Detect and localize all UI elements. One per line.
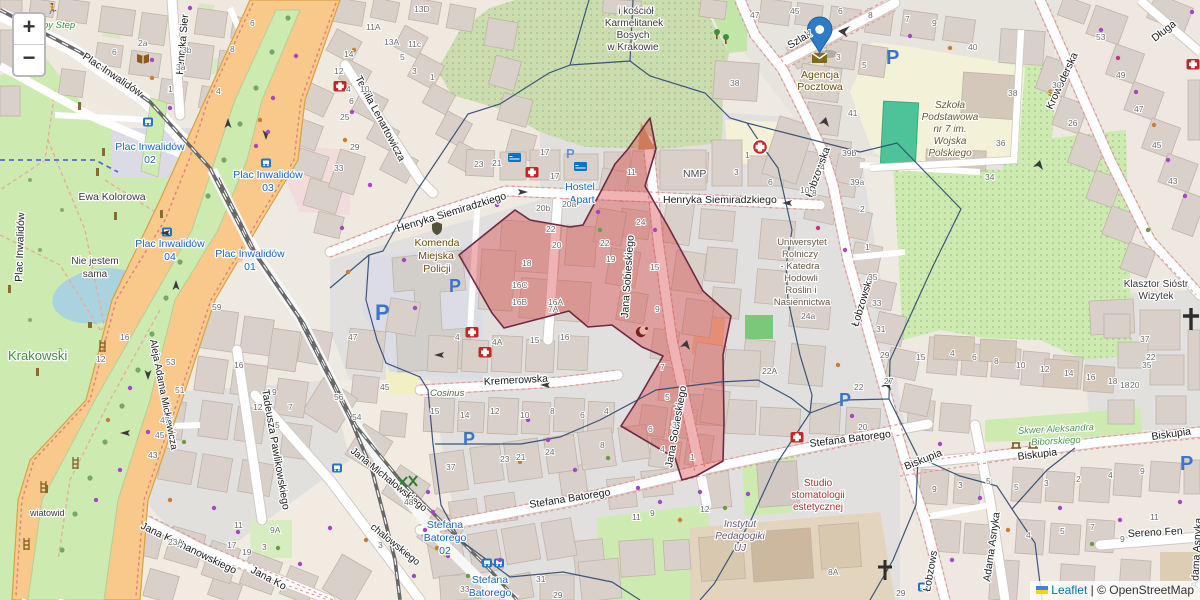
svg-text:16: 16 xyxy=(234,360,244,370)
svg-text:6: 6 xyxy=(768,177,773,187)
svg-text:9: 9 xyxy=(1140,466,1145,476)
svg-text:9: 9 xyxy=(650,508,655,518)
svg-text:16B: 16B xyxy=(512,297,527,307)
svg-text:9: 9 xyxy=(655,304,660,314)
svg-text:39b: 39b xyxy=(842,148,856,158)
svg-text:40: 40 xyxy=(968,42,978,52)
svg-text:43: 43 xyxy=(1168,176,1178,186)
svg-text:20: 20 xyxy=(858,422,868,432)
svg-text:Plac Inwalidów: Plac Inwalidów xyxy=(233,169,303,181)
svg-text:26: 26 xyxy=(1068,118,1078,128)
svg-text:4: 4 xyxy=(660,444,665,454)
svg-text:03: 03 xyxy=(262,182,274,194)
svg-text:20: 20 xyxy=(552,240,562,250)
svg-text:38: 38 xyxy=(730,78,740,88)
svg-text:5: 5 xyxy=(862,60,867,70)
svg-text:37: 37 xyxy=(446,462,456,472)
svg-text:3: 3 xyxy=(378,540,383,550)
svg-text:3a: 3a xyxy=(176,62,186,72)
svg-text:31: 31 xyxy=(876,324,886,334)
svg-text:4A: 4A xyxy=(492,337,503,347)
svg-text:11: 11 xyxy=(632,512,641,522)
svg-text:11: 11 xyxy=(1150,512,1159,522)
svg-text:49: 49 xyxy=(1116,70,1126,80)
svg-text:47: 47 xyxy=(348,332,358,342)
svg-text:wiatowid: wiatowid xyxy=(29,508,65,518)
svg-text:Batorego: Batorego xyxy=(424,532,467,544)
svg-text:29: 29 xyxy=(350,142,360,152)
svg-text:10: 10 xyxy=(1016,360,1026,370)
svg-text:5: 5 xyxy=(400,52,405,62)
svg-text:Komenda: Komenda xyxy=(415,237,460,249)
svg-text:9: 9 xyxy=(1120,534,1125,544)
svg-text:Plac Inwalidów: Plac Inwalidów xyxy=(115,141,185,153)
svg-text:3: 3 xyxy=(1044,478,1049,488)
svg-text:25: 25 xyxy=(340,112,350,122)
svg-text:24a: 24a xyxy=(801,311,815,321)
svg-text:Karmelitanek: Karmelitanek xyxy=(605,18,664,29)
svg-text:5: 5 xyxy=(1014,482,1019,492)
svg-text:🏃: 🏃 xyxy=(46,2,58,15)
svg-text:02: 02 xyxy=(144,154,156,166)
svg-text:4: 4 xyxy=(950,348,955,358)
svg-text:P: P xyxy=(463,429,475,449)
svg-text:7: 7 xyxy=(1090,522,1095,532)
svg-text:19: 19 xyxy=(606,254,616,264)
svg-text:Polskiego: Polskiego xyxy=(928,148,972,159)
svg-text:13A: 13A xyxy=(384,37,399,47)
svg-text:5: 5 xyxy=(1060,526,1065,536)
svg-text:3b: 3b xyxy=(182,45,192,55)
svg-text:10: 10 xyxy=(360,84,370,94)
svg-text:Henryka Siemiradzkiego: Henryka Siemiradzkiego xyxy=(663,194,777,206)
svg-text:4: 4 xyxy=(346,84,351,94)
svg-text:6: 6 xyxy=(648,424,653,434)
svg-text:51: 51 xyxy=(175,385,185,395)
svg-text:15: 15 xyxy=(916,352,926,362)
svg-text:4: 4 xyxy=(216,86,221,96)
svg-text:3: 3 xyxy=(412,66,417,76)
svg-text:2a: 2a xyxy=(138,38,148,48)
svg-text:38: 38 xyxy=(1008,88,1018,98)
svg-text:16A: 16A xyxy=(548,297,563,307)
svg-text:7: 7 xyxy=(288,402,293,412)
svg-text:Stefana: Stefana xyxy=(427,519,463,531)
svg-text:3: 3 xyxy=(958,480,963,490)
svg-text:4: 4 xyxy=(820,162,825,172)
svg-text:11c: 11c xyxy=(408,39,422,49)
svg-text:16C: 16C xyxy=(512,280,528,290)
svg-text:47: 47 xyxy=(160,415,170,425)
svg-text:15: 15 xyxy=(650,262,660,272)
svg-text:Uniwersytet: Uniwersytet xyxy=(777,237,827,248)
svg-text:w Krakowie: w Krakowie xyxy=(606,42,659,53)
svg-text:5: 5 xyxy=(275,420,280,430)
svg-text:13D: 13D xyxy=(414,4,430,14)
svg-text:Agencja: Agencja xyxy=(801,69,839,81)
svg-text:33: 33 xyxy=(460,584,470,594)
svg-text:12: 12 xyxy=(1040,364,1050,374)
svg-text:18: 18 xyxy=(522,258,532,268)
svg-text:23: 23 xyxy=(474,159,484,169)
svg-text:43: 43 xyxy=(148,450,158,460)
svg-text:30: 30 xyxy=(1052,80,1062,90)
svg-text:1: 1 xyxy=(690,452,695,462)
svg-text:5: 5 xyxy=(986,476,991,486)
svg-text:22: 22 xyxy=(600,238,610,248)
svg-text:14: 14 xyxy=(460,410,470,420)
svg-text:22A: 22A xyxy=(762,366,777,376)
svg-text:12: 12 xyxy=(334,66,344,76)
svg-text:29: 29 xyxy=(553,590,563,600)
svg-text:36: 36 xyxy=(996,138,1006,148)
svg-text:45: 45 xyxy=(790,6,800,16)
svg-text:by Step: by Step xyxy=(43,20,75,31)
svg-text:24: 24 xyxy=(636,217,646,227)
svg-text:8: 8 xyxy=(868,10,873,20)
svg-text:17: 17 xyxy=(227,540,237,550)
svg-text:8A: 8A xyxy=(828,567,839,577)
svg-text:Ewa Kolorowa: Ewa Kolorowa xyxy=(78,191,145,203)
svg-text:10: 10 xyxy=(800,185,810,195)
svg-text:8: 8 xyxy=(812,188,817,198)
svg-text:02: 02 xyxy=(439,545,451,557)
svg-text:39a: 39a xyxy=(850,177,864,187)
svg-text:4: 4 xyxy=(1026,530,1031,540)
svg-text:20b: 20b xyxy=(536,203,550,213)
svg-text:33: 33 xyxy=(334,163,344,173)
svg-text:53: 53 xyxy=(1096,32,1106,42)
svg-text:1: 1 xyxy=(745,150,750,160)
svg-text:1: 1 xyxy=(430,72,435,82)
svg-text:8: 8 xyxy=(600,440,605,450)
svg-text:4: 4 xyxy=(604,406,609,416)
svg-text:15: 15 xyxy=(530,335,540,345)
svg-text:18: 18 xyxy=(1108,376,1118,386)
svg-text:NMP: NMP xyxy=(683,168,706,180)
svg-text:5: 5 xyxy=(665,392,670,402)
svg-text:Nasiennictwa: Nasiennictwa xyxy=(774,297,831,308)
svg-text:27: 27 xyxy=(884,376,894,386)
svg-text:7: 7 xyxy=(660,362,665,372)
svg-text:Stefana: Stefana xyxy=(472,574,508,586)
svg-text:P: P xyxy=(839,390,851,410)
svg-text:45: 45 xyxy=(155,430,165,440)
svg-text:Szkoła: Szkoła xyxy=(935,100,965,111)
svg-text:1: 1 xyxy=(865,242,870,252)
svg-text:22: 22 xyxy=(546,224,556,234)
svg-text:P: P xyxy=(449,276,461,296)
svg-text:2: 2 xyxy=(860,204,865,214)
svg-text:4: 4 xyxy=(455,332,460,342)
svg-text:12: 12 xyxy=(700,504,710,514)
svg-text:estetycznej: estetycznej xyxy=(793,502,843,513)
svg-text:37: 37 xyxy=(1140,334,1150,344)
svg-text:P: P xyxy=(1180,453,1193,475)
svg-text:3: 3 xyxy=(836,52,841,62)
svg-text:31: 31 xyxy=(536,574,546,584)
svg-text:9A: 9A xyxy=(270,525,281,535)
svg-text:16: 16 xyxy=(1086,372,1096,382)
svg-text:04: 04 xyxy=(164,251,176,263)
svg-text:6: 6 xyxy=(580,410,585,420)
svg-text:12: 12 xyxy=(96,354,106,364)
svg-text:19: 19 xyxy=(242,547,252,557)
svg-text:12: 12 xyxy=(490,406,500,416)
svg-text:47: 47 xyxy=(1134,104,1144,114)
svg-text:Klasztor Sióstr: Klasztor Sióstr xyxy=(1124,279,1189,290)
svg-text:8: 8 xyxy=(994,356,999,366)
svg-text:9: 9 xyxy=(272,387,277,397)
svg-text:Studio: Studio xyxy=(804,478,833,489)
svg-text:20: 20 xyxy=(1130,380,1140,390)
svg-text:Batorego: Batorego xyxy=(469,587,512,599)
svg-text:29: 29 xyxy=(896,588,906,598)
svg-text:2: 2 xyxy=(1076,474,1081,484)
svg-text:34: 34 xyxy=(985,172,995,182)
svg-text:20a: 20a xyxy=(562,199,576,209)
svg-text:Bosych: Bosych xyxy=(617,30,650,41)
svg-text:Plac Inwalidów: Plac Inwalidów xyxy=(13,212,27,282)
svg-text:35: 35 xyxy=(868,272,878,282)
svg-text:11A: 11A xyxy=(366,22,381,32)
svg-text:Cosinus: Cosinus xyxy=(430,388,465,399)
svg-text:22: 22 xyxy=(1146,352,1156,362)
svg-text:6: 6 xyxy=(250,18,255,28)
svg-text:23: 23 xyxy=(500,454,510,464)
svg-text:17: 17 xyxy=(540,147,550,157)
svg-text:P: P xyxy=(886,47,899,69)
svg-text:Pocztowa: Pocztowa xyxy=(797,81,843,93)
svg-text:01: 01 xyxy=(244,261,256,273)
svg-text:9: 9 xyxy=(932,484,937,494)
svg-text:7: 7 xyxy=(905,14,910,24)
svg-text:3: 3 xyxy=(262,542,267,552)
svg-text:nr 7 im.: nr 7 im. xyxy=(933,124,966,135)
svg-text:4: 4 xyxy=(806,28,811,38)
svg-text:Podstawowa: Podstawowa xyxy=(922,112,979,123)
svg-text:21: 21 xyxy=(516,452,526,462)
svg-text:45: 45 xyxy=(1152,140,1162,150)
svg-text:12: 12 xyxy=(253,402,263,412)
svg-text:6: 6 xyxy=(112,47,117,57)
svg-text:Wojska: Wojska xyxy=(934,136,967,147)
svg-text:Krakowski: Krakowski xyxy=(8,348,67,363)
svg-text:22: 22 xyxy=(854,382,864,392)
svg-text:Instytut: Instytut xyxy=(724,519,757,530)
svg-text:P: P xyxy=(566,146,575,161)
svg-text:17: 17 xyxy=(550,171,560,181)
svg-text:11: 11 xyxy=(627,167,636,177)
svg-text:- Katedra: - Katedra xyxy=(780,261,820,272)
svg-text:9: 9 xyxy=(932,18,937,28)
svg-text:23A: 23A xyxy=(168,537,183,547)
svg-text:Policji: Policji xyxy=(423,263,450,275)
svg-text:Roślin i: Roślin i xyxy=(785,285,816,296)
svg-text:Wizytek: Wizytek xyxy=(1139,291,1175,302)
svg-text:16: 16 xyxy=(560,332,570,342)
svg-text:3: 3 xyxy=(734,167,739,177)
svg-text:Plac Inwalidów: Plac Inwalidów xyxy=(215,248,285,260)
svg-text:8: 8 xyxy=(550,406,555,416)
svg-text:16: 16 xyxy=(120,332,130,342)
svg-text:24: 24 xyxy=(545,447,555,457)
svg-text:47: 47 xyxy=(750,10,760,20)
svg-text:18: 18 xyxy=(1120,380,1130,390)
svg-text:4: 4 xyxy=(1108,470,1113,480)
svg-text:Plac Inwalidów: Plac Inwalidów xyxy=(135,238,205,250)
svg-text:45: 45 xyxy=(380,382,390,392)
svg-text:Rolniczy: Rolniczy xyxy=(782,249,818,260)
svg-text:29: 29 xyxy=(880,350,890,360)
svg-text:6: 6 xyxy=(838,6,843,16)
svg-text:stomatologii: stomatologii xyxy=(791,490,844,501)
svg-text:21: 21 xyxy=(492,158,502,168)
svg-text:10: 10 xyxy=(520,410,530,420)
svg-text:Hodowli: Hodowli xyxy=(784,273,818,284)
svg-text:Miejska: Miejska xyxy=(418,250,454,262)
svg-text:41: 41 xyxy=(848,108,858,118)
svg-text:6: 6 xyxy=(349,96,354,106)
svg-text:6: 6 xyxy=(972,352,977,362)
svg-text:33: 33 xyxy=(872,298,882,308)
svg-text:i kościół: i kościół xyxy=(618,6,654,17)
svg-text:1: 1 xyxy=(168,84,173,94)
svg-text:Pedagogiki: Pedagogiki xyxy=(715,531,765,542)
svg-text:15: 15 xyxy=(430,406,440,416)
svg-text:sama: sama xyxy=(83,269,108,280)
svg-text:14: 14 xyxy=(1064,368,1074,378)
svg-text:56: 56 xyxy=(334,392,344,402)
svg-text:Hostel: Hostel xyxy=(565,181,595,193)
svg-text:59: 59 xyxy=(212,302,222,312)
svg-text:Nie jestem: Nie jestem xyxy=(71,256,118,267)
svg-text:48: 48 xyxy=(404,497,414,507)
svg-text:14: 14 xyxy=(344,49,354,59)
svg-text:3: 3 xyxy=(672,420,677,430)
svg-text:P: P xyxy=(375,300,390,325)
svg-text:54: 54 xyxy=(352,412,362,422)
svg-text:53: 53 xyxy=(166,357,176,367)
svg-text:UJ: UJ xyxy=(734,543,747,554)
svg-text:11: 11 xyxy=(234,520,243,530)
svg-text:8: 8 xyxy=(230,44,235,54)
